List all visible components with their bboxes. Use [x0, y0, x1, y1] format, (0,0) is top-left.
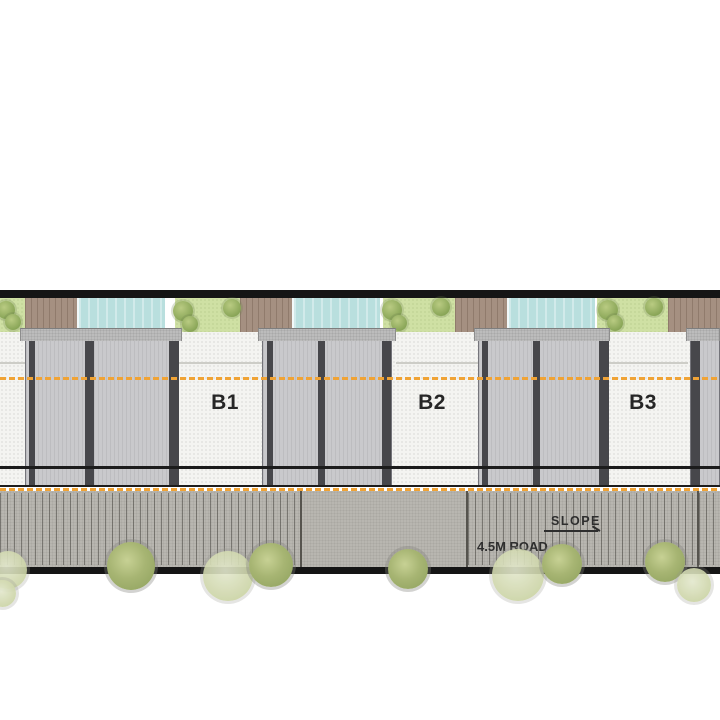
yard-terrace-line — [396, 362, 478, 364]
setback-line-upper — [0, 377, 720, 380]
street-tree-icon — [492, 549, 544, 601]
street-tree-icon — [388, 549, 428, 589]
house-roof-header-4 — [686, 328, 720, 341]
unit-label-b1: B1 — [195, 391, 255, 415]
plot-front-edge — [0, 485, 720, 487]
pool-area-3 — [507, 298, 595, 332]
deck-area-1 — [25, 298, 77, 332]
street-tree-icon — [677, 568, 711, 602]
deck-area-3 — [455, 298, 507, 332]
site-plan-drawing: B1 B2 B3 4.5M ROAD SLOPE — [0, 0, 720, 720]
street-tree-icon — [249, 543, 293, 587]
garden-tree-icon — [5, 314, 21, 330]
garden-tree-icon — [223, 299, 241, 317]
garden-tree-icon — [432, 298, 450, 316]
slope-direction-arrow-icon — [544, 530, 598, 532]
street-tree-icon — [107, 542, 155, 590]
house-roof-header-1 — [20, 328, 182, 341]
garden-tree-icon — [645, 298, 663, 316]
yard-terrace-line — [178, 362, 262, 364]
deck-area-2 — [240, 298, 292, 332]
road-section-divider — [466, 491, 468, 567]
unit-label-b2: B2 — [402, 391, 462, 415]
garden-tree-icon — [182, 316, 198, 332]
house-roof-header-2 — [258, 328, 396, 341]
pool-area-1 — [77, 298, 165, 332]
yard-terrace-line — [608, 362, 688, 364]
deck-area-4 — [668, 298, 720, 332]
street-tree-icon — [203, 551, 253, 601]
parking-edge-line — [0, 466, 720, 469]
plot-boundary-top — [0, 290, 720, 298]
unit-label-b3: B3 — [613, 391, 673, 415]
street-tree-icon — [542, 544, 582, 584]
road-section-divider — [300, 491, 302, 567]
pool-area-2 — [292, 298, 380, 332]
yard-terrace-line — [0, 362, 25, 364]
house-roof-header-3 — [474, 328, 610, 341]
road-section-divider — [697, 491, 699, 567]
